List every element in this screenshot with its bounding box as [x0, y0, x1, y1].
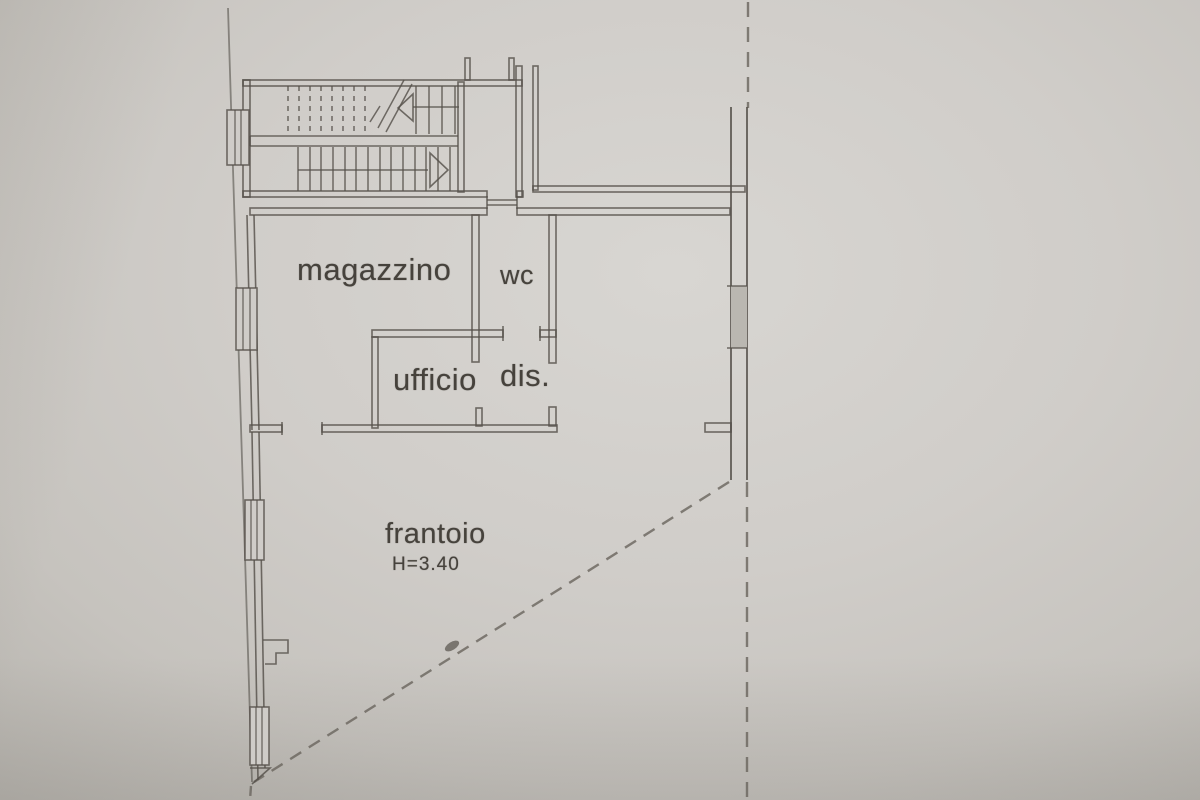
- window: [227, 110, 249, 165]
- wall: [250, 422, 731, 435]
- door-jamb: [509, 58, 514, 80]
- boundary-diagonal-dashed-line: [254, 482, 729, 782]
- upper-right-room: [533, 66, 747, 480]
- floor-plan-drawing: [0, 0, 1200, 800]
- window: [250, 707, 269, 765]
- room-label-dis: dis.: [500, 358, 550, 394]
- window: [245, 500, 264, 560]
- window: [236, 288, 257, 350]
- stair-treads-upper-dashed: [288, 86, 365, 134]
- stair-treads-lower: [298, 147, 450, 191]
- stair-treads-upper: [416, 86, 455, 134]
- stair-cut-line: [370, 80, 412, 132]
- room-height-note: H=3.40: [392, 554, 460, 576]
- stair-handrail: [250, 136, 458, 146]
- door-threshold: [487, 196, 517, 209]
- room-label-ufficio: ufficio: [393, 362, 477, 398]
- wall: [250, 208, 730, 215]
- door-jamb: [465, 58, 470, 80]
- stairwell: [243, 58, 523, 197]
- diagonal-point-marker: [443, 638, 461, 653]
- room-label-magazzino: magazzino: [297, 252, 451, 288]
- floor-plan-photo: magazzino wc ufficio dis. frantoio H=3.4…: [0, 0, 1200, 800]
- wall-pilaster: [263, 640, 288, 664]
- room-label-wc: wc: [500, 260, 534, 291]
- room-label-frantoio: frantoio: [385, 518, 486, 551]
- wall-end-cap: [250, 768, 270, 784]
